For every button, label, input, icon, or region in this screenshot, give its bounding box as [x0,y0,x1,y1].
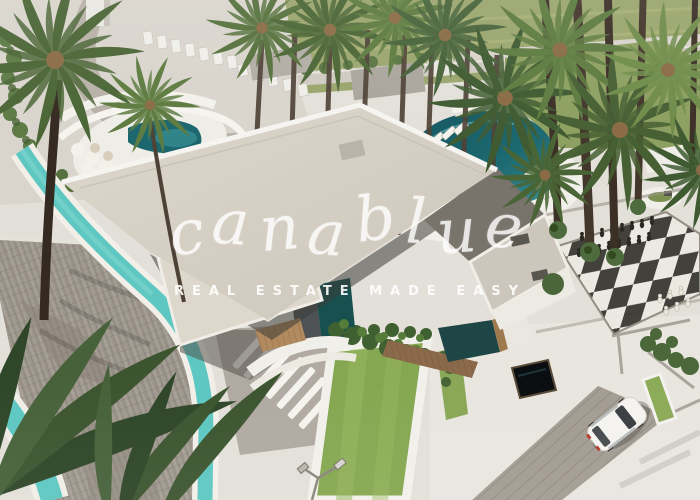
reflecting-pool [512,360,556,398]
aerial-scene [0,0,700,500]
property-aerial-photo: canablue REAL ESTATE MADE EASY [0,0,700,500]
